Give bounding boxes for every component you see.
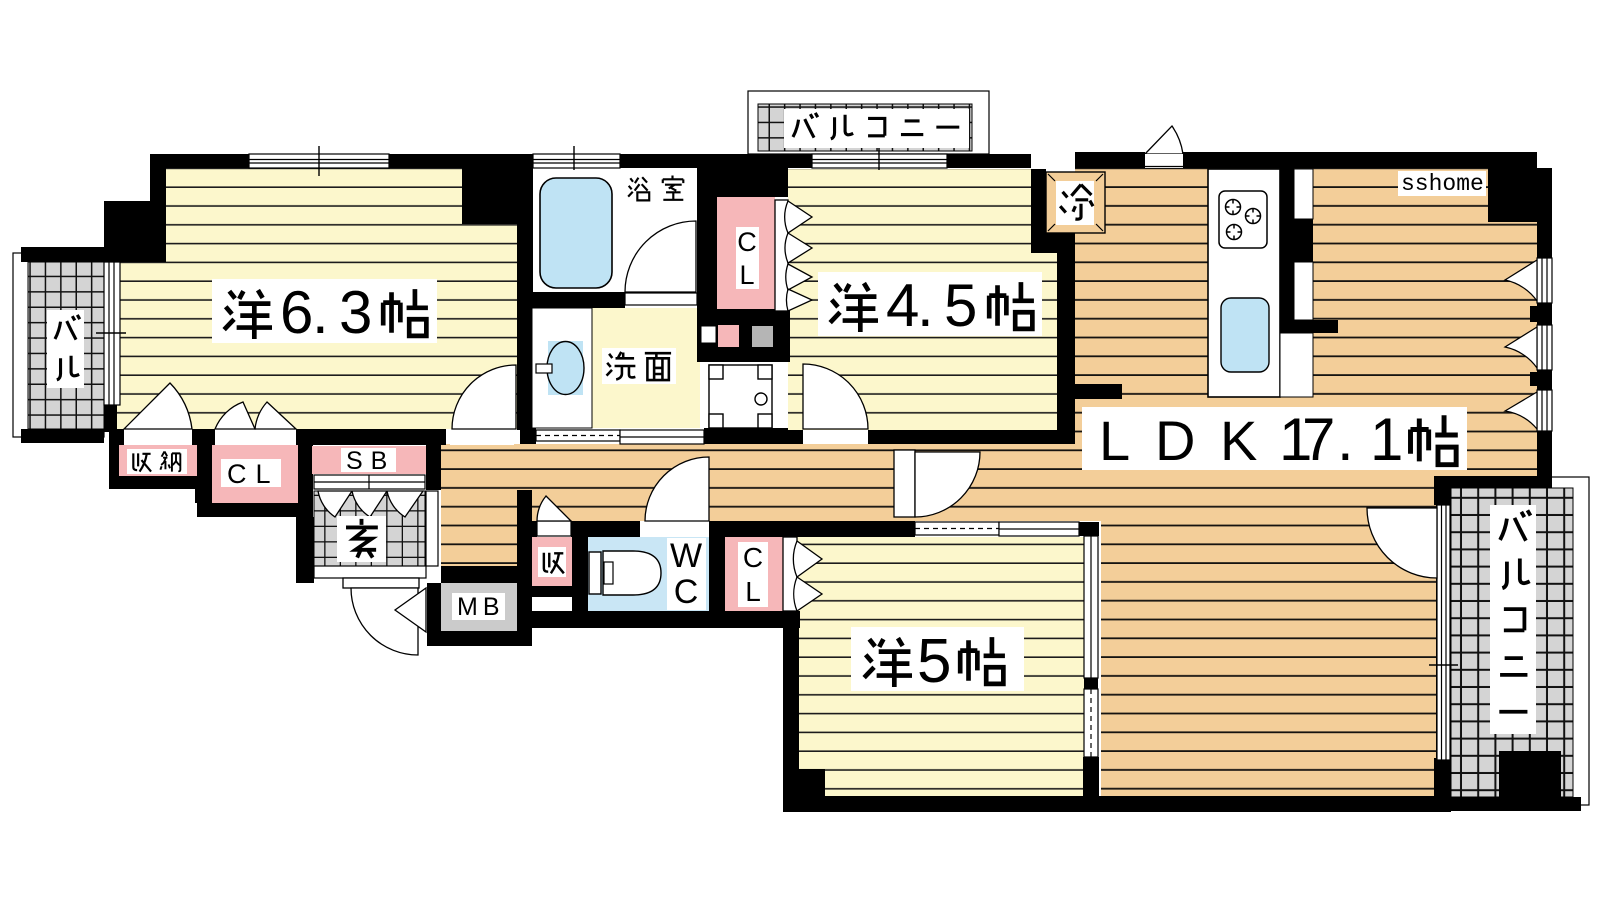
svg-text:CL: CL (227, 459, 280, 489)
svg-text:L: L (1099, 409, 1130, 472)
svg-text:C: C (743, 542, 763, 573)
svg-text:SB: SB (346, 447, 395, 475)
svg-text:.: . (917, 272, 934, 339)
svg-text:.: . (1337, 406, 1354, 473)
svg-text:C: C (737, 227, 757, 257)
svg-text:C: C (674, 573, 699, 611)
svg-text:sshome: sshome (1401, 171, 1484, 197)
svg-text:5: 5 (944, 272, 977, 339)
svg-text:4: 4 (886, 272, 919, 339)
svg-text:7: 7 (1302, 406, 1335, 473)
svg-text:K: K (1220, 409, 1257, 472)
svg-text:W: W (670, 537, 702, 575)
svg-text:L: L (739, 260, 754, 290)
svg-text:1: 1 (1370, 406, 1403, 473)
svg-text:5: 5 (917, 627, 951, 696)
svg-text:6: 6 (280, 279, 313, 346)
svg-text:MB: MB (457, 593, 505, 621)
svg-text:3: 3 (339, 279, 372, 346)
svg-text:.: . (312, 279, 329, 346)
svg-text:L: L (745, 576, 761, 607)
svg-text:D: D (1155, 409, 1195, 472)
